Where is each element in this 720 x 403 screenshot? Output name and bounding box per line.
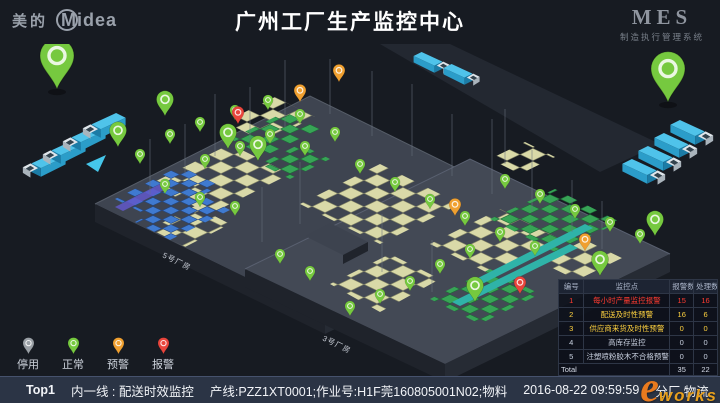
total-alarms: 35 [670,364,694,376]
ticker-nav: 分厂 物流 分厂 仓管 [655,381,720,400]
row-name: 高库存监控 [584,336,670,350]
table-row[interactable]: 1 每小时产量监控报警 15 16 [559,294,718,308]
table-total-row: Total 35 22 [559,364,718,376]
total-label: Total [559,364,670,376]
row-no: 4 [559,336,584,350]
row-alarms: 16 [670,308,694,322]
ticker-timestamp: 2016-08-22 09:59:59 [523,383,639,397]
table-row[interactable]: 5 注塑喷粉胶木不合格预警 0 0 [559,350,718,364]
row-handled: 6 [694,308,718,322]
legend-label: 预警 [107,356,129,372]
row-no: 1 [559,294,584,308]
table-row[interactable]: 2 配送及时性预警 16 6 [559,308,718,322]
page-title: 广州工厂生产监控中心 [120,6,580,36]
row-alarms: 15 [670,294,694,308]
pin-normal-icon [67,337,80,354]
factory-scene: 5号厂房 3号厂房 停用 正常 预警 报警 [0,44,720,376]
brand-chinese: 美的 [12,10,48,31]
ticker-line: 内一线 : 配送时效监控 [71,381,194,400]
row-alarms: 0 [670,350,694,364]
col-header-alarms: 报警数 [670,280,694,294]
mes-logo: MES 制造执行管理系统 [620,5,704,43]
row-handled: 0 [694,336,718,350]
ticker-detail: 产线:PZZ1XT0001;作业号:H1F莞160805001N02;物料 [210,381,507,400]
row-handled: 0 [694,322,718,336]
legend-label: 正常 [62,356,84,372]
table-header-row: 编号 监控点 报警数 处理数 [559,280,718,294]
dashboard: 美的 Midea 广州工厂生产监控中心 MES 制造执行管理系统 [0,0,720,403]
row-handled: 0 [694,350,718,364]
mes-subtitle: 制造执行管理系统 [620,31,704,43]
table-row[interactable]: 3 供应商来货及时性预警 0 0 [559,322,718,336]
legend-item-disabled: 停用 [12,337,44,372]
nav-branch-logistics[interactable]: 分厂 物流 [655,381,708,400]
flow-arrow-icon [86,155,106,172]
pin-warning-icon [112,337,125,354]
mes-title: MES [620,5,704,30]
row-name: 供应商来货及时性预警 [584,322,670,336]
legend-label: 停用 [17,356,39,372]
legend-label: 报警 [152,356,174,372]
status-legend: 停用 正常 预警 报警 [12,337,179,372]
status-pins-normal-xl[interactable] [40,44,685,108]
pin-alarm-icon [157,337,170,354]
row-alarms: 0 [670,322,694,336]
alarm-monitor-table: 编号 监控点 报警数 处理数 1 每小时产量监控报警 15 16 2 配送及时性… [558,279,718,376]
total-handled: 22 [694,364,718,376]
building-3-label: 3号厂房 [321,333,353,355]
row-name: 注塑喷粉胶木不合格预警 [584,350,670,364]
legend-item-alarm: 报警 [147,337,179,372]
col-header-handled: 处理数 [694,280,718,294]
ticker-rank: Top1 [26,383,55,397]
row-no: 5 [559,350,584,364]
legend-item-warning: 预警 [102,337,134,372]
trucks-left [23,113,126,178]
alert-ticker-bar: Top1 内一线 : 配送时效监控 产线:PZZ1XT0001;作业号:H1F莞… [0,376,720,403]
col-header-no: 编号 [559,280,584,294]
midea-logo: 美的 Midea [12,9,117,31]
row-name: 每小时产量监控报警 [584,294,670,308]
table-row[interactable]: 4 高库存监控 0 0 [559,336,718,350]
legend-item-normal: 正常 [57,337,89,372]
row-no: 3 [559,322,584,336]
header: 美的 Midea 广州工厂生产监控中心 MES 制造执行管理系统 [0,0,720,44]
col-header-point: 监控点 [584,280,670,294]
row-handled: 16 [694,294,718,308]
pin-disabled-icon [22,337,35,354]
row-name: 配送及时性预警 [584,308,670,322]
brand-english: Midea [61,10,117,31]
row-no: 2 [559,308,584,322]
row-alarms: 0 [670,336,694,350]
